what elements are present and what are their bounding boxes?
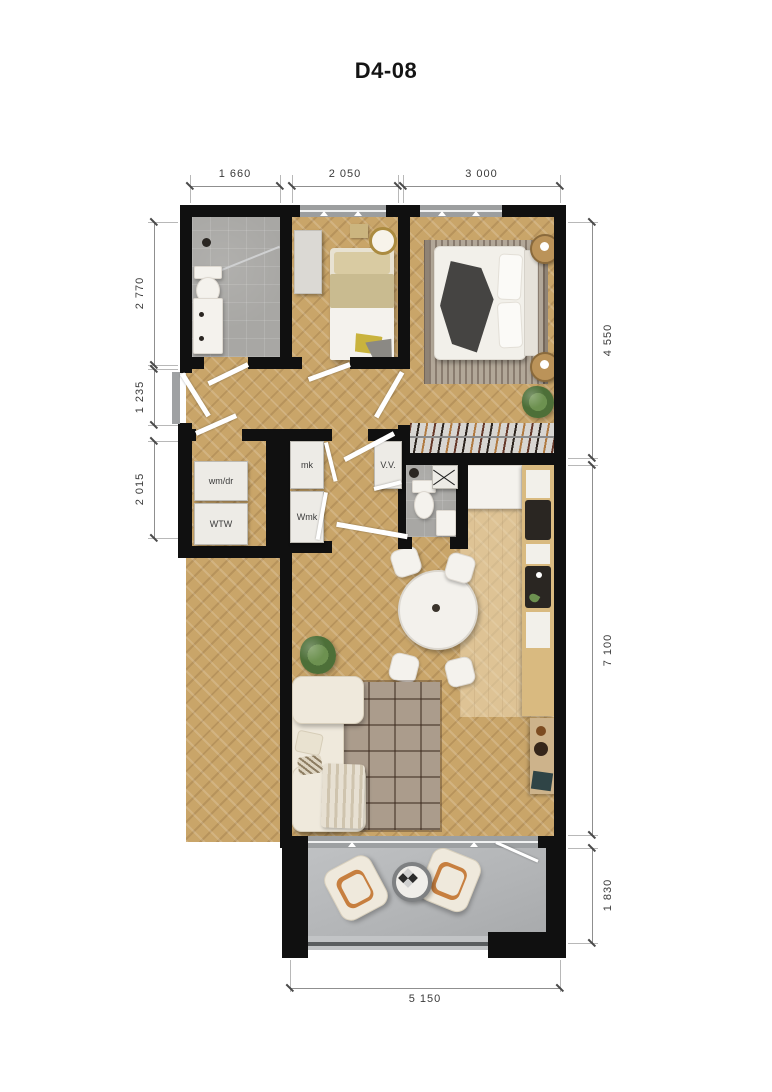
toilet-accessory (409, 468, 419, 478)
dimension-line-bottom (290, 988, 560, 989)
dimension-label-right-3: 1 830 (601, 855, 615, 935)
wardrobe (294, 230, 322, 294)
plan-title: D4-08 (296, 58, 476, 84)
dimension-label-top-2: 2 050 (292, 167, 398, 181)
ventilation-label: V.V. (380, 460, 395, 470)
wall-left-lower (178, 423, 192, 558)
dimension-line-right-2 (592, 465, 593, 835)
vanity-faucet-2 (199, 336, 204, 341)
wall-left-upper (180, 205, 192, 373)
heat-recovery-label: WTW (210, 519, 233, 529)
wall-toilet-south-right (450, 537, 468, 549)
table-vase (432, 604, 440, 612)
dimension-label-right-2: 7 100 (601, 610, 615, 690)
dimension-label-left-3: 2 015 (133, 449, 147, 529)
dimension-line-right-3 (592, 848, 593, 943)
wall-balcony-left (282, 836, 308, 958)
meter-cupboard-label: mk (301, 460, 313, 470)
window-arrow-icon (354, 207, 362, 216)
washer-dryer-label: wm/dr (209, 476, 234, 486)
single-bed-blanket (330, 274, 394, 308)
dimension-label-top-3: 3 000 (403, 167, 560, 181)
window-master-glass (420, 210, 502, 212)
dimension-label-left-1: 2 770 (133, 253, 147, 333)
kitchen-cabinet-top (462, 465, 522, 509)
wall-hall-south-left (178, 429, 196, 441)
open-closet-rack (410, 423, 554, 453)
single-bed-pillow (334, 252, 390, 274)
closet-rail (410, 436, 554, 438)
cooktop (525, 500, 551, 540)
sofa-chaise-top (292, 676, 364, 724)
counter-white-1 (526, 470, 550, 498)
dimension-label-left-2: 1 235 (133, 357, 147, 437)
extension-line (280, 175, 281, 203)
sliding-door-arrow-icon (348, 838, 356, 847)
wall-bath-south-right (248, 357, 292, 369)
shower-head (202, 238, 211, 247)
sofa-pillow-2 (297, 754, 323, 775)
window-arrow-icon (438, 207, 446, 216)
dimension-line-left-2 (154, 369, 155, 425)
vanity-faucet-1 (199, 312, 204, 317)
toilet-basin (436, 510, 456, 536)
sofa-throw-blanket (321, 763, 365, 828)
sideboard-pot (534, 742, 548, 756)
dimension-line-top-1 (190, 186, 280, 187)
floorplan-sheet: D4-08 wm/dr WTW mk Wmk V.V. (0, 0, 772, 1092)
dimension-line-left-3 (154, 441, 155, 538)
wall-living-west (280, 546, 292, 848)
entrance-threshold (172, 372, 180, 424)
sliding-door-arrow-icon (470, 838, 478, 847)
pillow-2 (497, 301, 523, 348)
counter-white-2 (526, 544, 550, 564)
wall-bath-bedroom-divider (280, 205, 292, 369)
toilet-bowl (414, 491, 434, 519)
living-room-plant (300, 636, 336, 674)
shaft-box (432, 465, 458, 489)
washer-dryer-box: wm/dr (194, 461, 248, 501)
lamp-2 (540, 360, 549, 369)
wall-bedroom-south-right (350, 357, 410, 369)
window-arrow-icon (472, 207, 480, 216)
sideboard-book (531, 771, 553, 792)
wall-bedroom-south-left (292, 357, 302, 369)
round-mirror (369, 227, 397, 255)
sideboard-bowl (536, 726, 546, 736)
meter-cupboard-box: mk (290, 441, 324, 489)
water-meter-label: Wmk (297, 512, 318, 522)
dimension-label-top-1: 1 660 (190, 167, 280, 181)
wall-utility-east (266, 429, 290, 558)
balcony-railing-rail (308, 942, 488, 946)
window-bedroom-glass (300, 210, 386, 212)
sliding-door-glass (308, 841, 538, 843)
dimension-line-top-3 (403, 186, 560, 187)
wall-east (554, 205, 566, 848)
sink-faucet (536, 572, 542, 578)
dimension-line-right-1 (592, 222, 593, 458)
pillow-1 (497, 253, 523, 300)
extension-line (560, 175, 561, 203)
window-arrow-icon (320, 207, 328, 216)
heat-recovery-box: WTW (194, 503, 248, 545)
wall-balcony-bottom-right (488, 932, 566, 958)
wall-bedroom-master-divider (398, 205, 410, 369)
dimension-line-top-2 (292, 186, 398, 187)
extension-line (398, 175, 399, 203)
dresser (350, 224, 368, 238)
dimension-line-left-1 (154, 222, 155, 365)
wall-bath-south-left (180, 357, 204, 369)
wall-master-south (398, 453, 566, 465)
lamp-1 (540, 242, 549, 251)
counter-white-3 (526, 612, 550, 648)
bedroom-plant (522, 386, 554, 418)
dimension-label-bottom: 5 150 (290, 992, 560, 1006)
double-bed-headboard (524, 250, 538, 356)
dimension-label-right-1: 4 550 (601, 300, 615, 380)
bathroom-vanity (193, 298, 223, 354)
